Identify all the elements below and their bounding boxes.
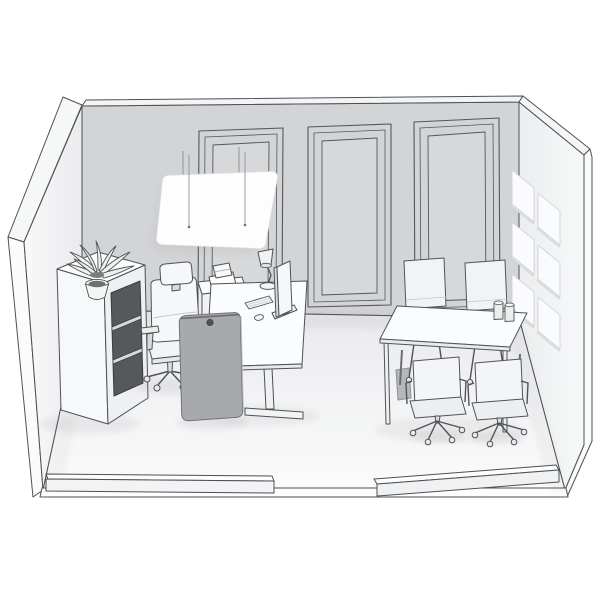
chair-headrest: [160, 262, 193, 285]
caster: [410, 430, 416, 436]
chair-backrest: [404, 258, 446, 309]
caster: [511, 439, 517, 445]
caster: [459, 427, 465, 433]
privacy-screen-panel: [179, 313, 242, 421]
office-room-render: [0, 0, 600, 600]
chair-seat: [472, 399, 528, 420]
caster: [154, 385, 160, 391]
caster: [449, 437, 455, 443]
credenza-shelf-opening: [111, 281, 143, 396]
caster: [487, 441, 493, 447]
knee-wall-left: [46, 474, 274, 493]
caster: [472, 432, 478, 438]
caster: [425, 439, 431, 445]
privacy-screen: [176, 313, 248, 430]
caster: [521, 429, 527, 435]
desk-column: [264, 368, 274, 409]
monitor-panel: [277, 261, 292, 316]
lamp-base: [260, 283, 276, 290]
chair-seat: [410, 397, 466, 418]
caster: [144, 376, 150, 382]
room-scene: [0, 0, 600, 600]
pendant-panel-face: [162, 177, 272, 243]
screen-grommet: [207, 319, 213, 325]
